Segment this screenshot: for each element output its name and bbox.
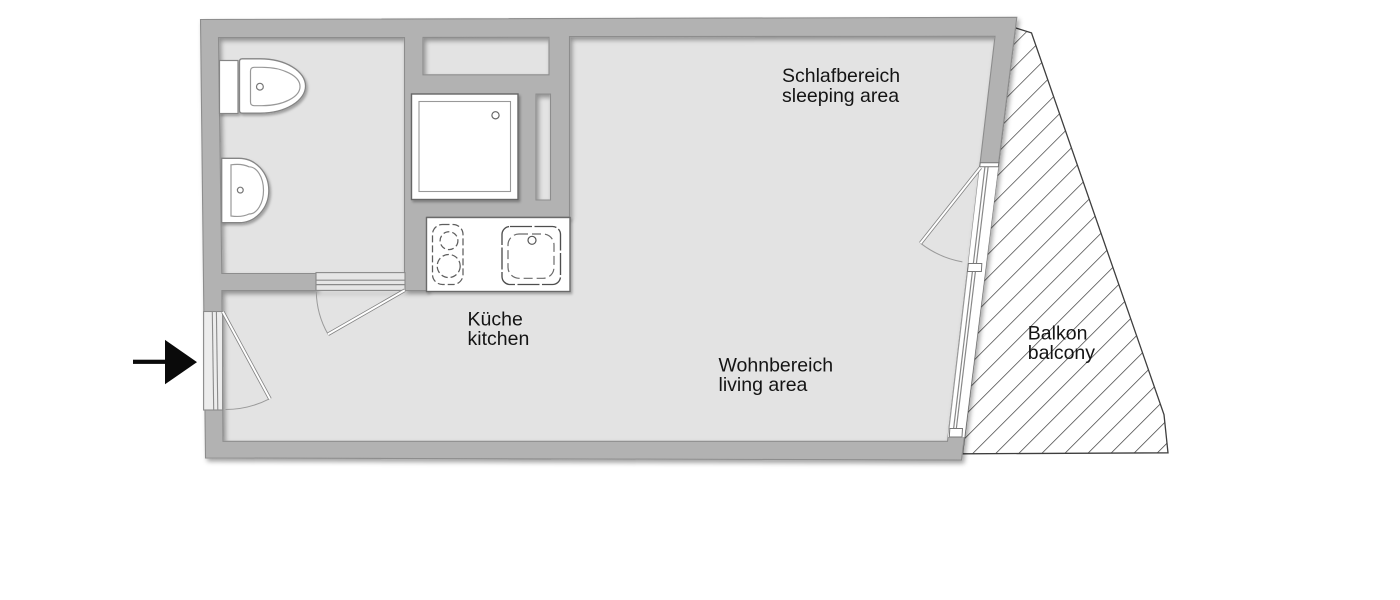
svg-text:Küche: Küche	[468, 309, 523, 331]
svg-text:Schlafbereich: Schlafbereich	[782, 65, 900, 87]
svg-text:kitchen: kitchen	[468, 328, 530, 350]
svg-text:Wohnbereich: Wohnbereich	[719, 355, 834, 377]
svg-text:living area: living area	[719, 374, 808, 396]
svg-text:balcony: balcony	[1028, 342, 1095, 364]
svg-text:sleeping area: sleeping area	[782, 85, 899, 107]
